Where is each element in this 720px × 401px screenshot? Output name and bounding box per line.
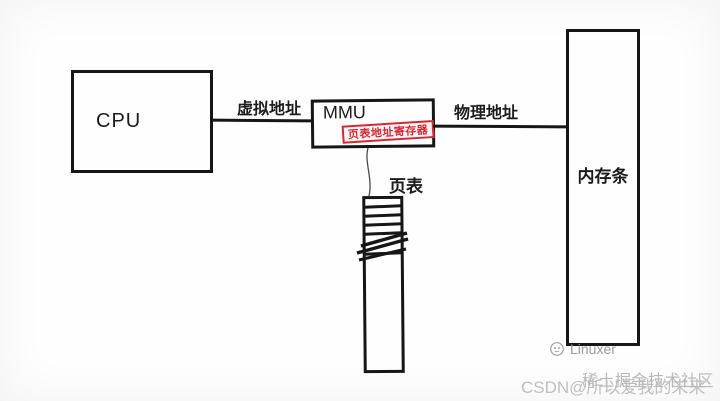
page-table-row-line — [365, 251, 402, 256]
mmu-diagram-canvas: CPU 虚拟地址 MMU 页表地址寄存器 物理地址 内存条 页表 — [0, 0, 720, 401]
page-table-box — [362, 196, 405, 373]
physical-address-label: 物理地址 — [454, 99, 518, 123]
csdn-watermark-text: CSDN@所以爱我的未来 — [521, 373, 705, 398]
mmu-box: MMU 页表地址寄存器 — [311, 98, 436, 148]
linuxer-watermark: Linuxer — [549, 341, 616, 357]
cpu-box: CPU — [71, 70, 213, 173]
page-table-row-line — [364, 222, 401, 227]
page-table-row-line — [365, 231, 402, 236]
linuxer-watermark-text: Linuxer — [570, 341, 616, 357]
linuxer-logo-icon — [549, 341, 565, 357]
mmu-to-pagetable-line — [367, 148, 370, 196]
memory-label: 内存条 — [569, 162, 637, 187]
page-table-row-line — [364, 204, 401, 209]
page-table-address-register-box: 页表地址寄存器 — [342, 120, 435, 144]
page-table-label: 页表 — [389, 172, 423, 197]
memory-box: 内存条 — [566, 29, 640, 346]
physical-address-line — [433, 125, 568, 129]
virtual-address-label: 虚拟地址 — [237, 95, 301, 119]
virtual-address-line — [212, 119, 313, 123]
mmu-label: MMU — [323, 102, 366, 123]
page-table-row-line — [364, 213, 401, 218]
cpu-label: CPU — [74, 110, 141, 133]
